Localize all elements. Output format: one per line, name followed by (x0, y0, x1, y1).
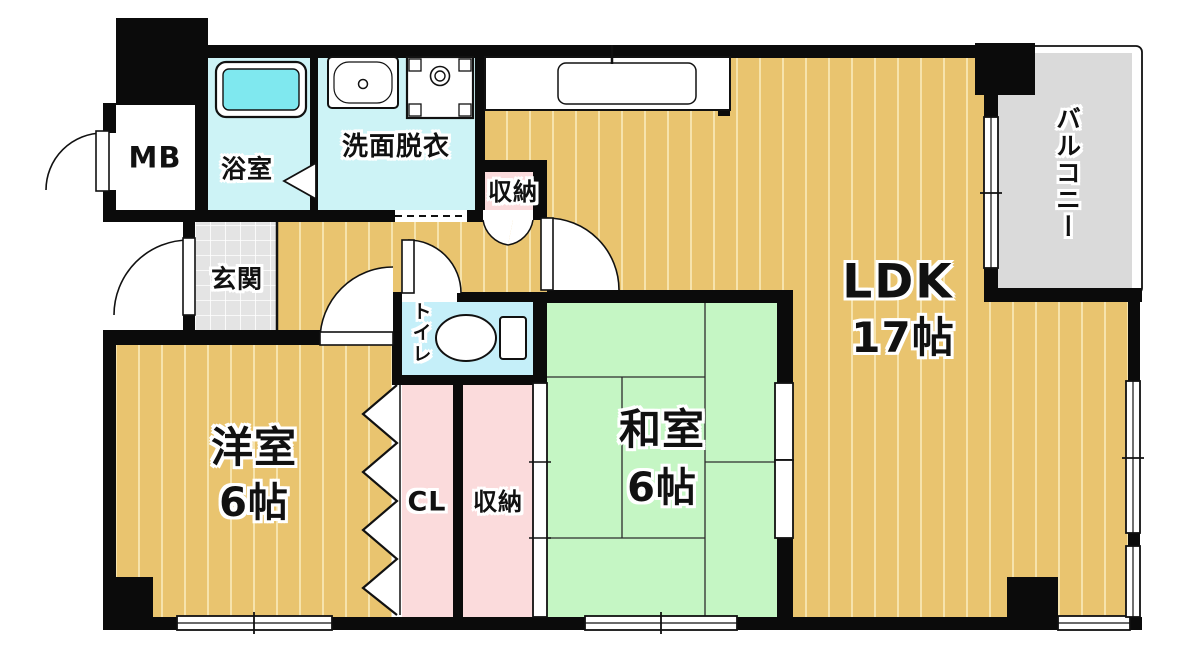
ldk-floor-lower (793, 288, 1138, 620)
label-ldk-size: 17帖 (851, 317, 954, 359)
bathtub (216, 62, 306, 117)
label-closet: CL (407, 489, 446, 516)
label-japanese-room: 和室 (619, 409, 705, 451)
label-western-room: 洋室 (211, 427, 297, 469)
japanese-room (547, 303, 777, 617)
window-ldk-south (1058, 616, 1130, 630)
label-ldk: LDK (842, 259, 953, 306)
fusuma-storage-japanese-room (529, 383, 551, 617)
tatami-floor (547, 303, 777, 617)
window-japanese-room-south (585, 612, 737, 634)
label-mb: MB (129, 144, 182, 173)
vanity-sink (328, 57, 398, 108)
label-japanese-room-size: 6帖 (627, 468, 697, 508)
label-tatami-storage: 収納 (473, 490, 523, 514)
label-western-room-size: 6帖 (219, 483, 289, 523)
window-western-room-south (177, 612, 332, 634)
label-entrance: 玄関 (211, 267, 263, 292)
label-toilet: トイレ (411, 302, 430, 365)
wall-corner-block-nw (116, 18, 195, 105)
window-ldk-east-lower (1126, 546, 1140, 617)
toilet-bowl (436, 315, 526, 361)
window-balcony-sliding (980, 117, 1002, 268)
label-bathroom: 浴室 (221, 157, 273, 182)
kitchen-sink (558, 63, 696, 104)
label-balcony: バルコニー (1055, 106, 1080, 241)
label-hall-storage: 収納 (488, 180, 538, 204)
sliding-door-japanese-ldk (775, 383, 793, 538)
door-mb (46, 131, 109, 191)
label-washroom: 洗面脱衣 (342, 134, 450, 160)
floorplan-drawing (0, 0, 1197, 661)
pillar-sw (103, 577, 153, 630)
door-entrance (114, 238, 195, 315)
window-ldk-east-upper (1122, 381, 1144, 533)
pillar-se (1007, 577, 1058, 630)
wall-corner-block-ne (975, 43, 1035, 95)
floorplan-canvas: MB 浴室 洗面脱衣 収納 玄関 トイレ CL 収納 洋室 6帖 和室 6帖 L… (0, 0, 1197, 661)
washing-machine (407, 57, 473, 118)
